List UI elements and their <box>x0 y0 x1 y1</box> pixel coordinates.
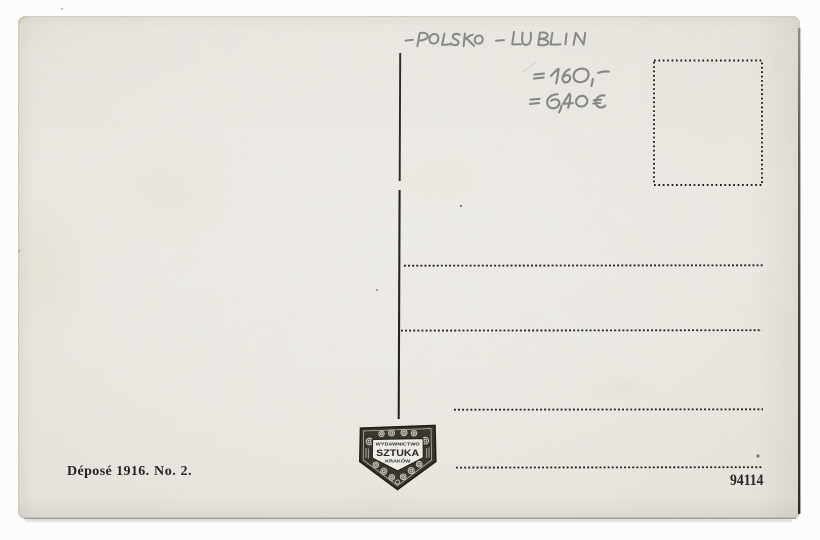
svg-text:No. 2.: No. 2. <box>154 464 192 479</box>
svg-text:SZTUKA: SZTUKA <box>376 448 419 459</box>
svg-text:WYDAWNICTWO: WYDAWNICTWO <box>376 442 421 447</box>
svg-text:94114: 94114 <box>730 472 764 489</box>
svg-text:Déposé 1916.: Déposé 1916. <box>67 464 150 479</box>
svg-text:KRAKÓW: KRAKÓW <box>385 456 411 463</box>
